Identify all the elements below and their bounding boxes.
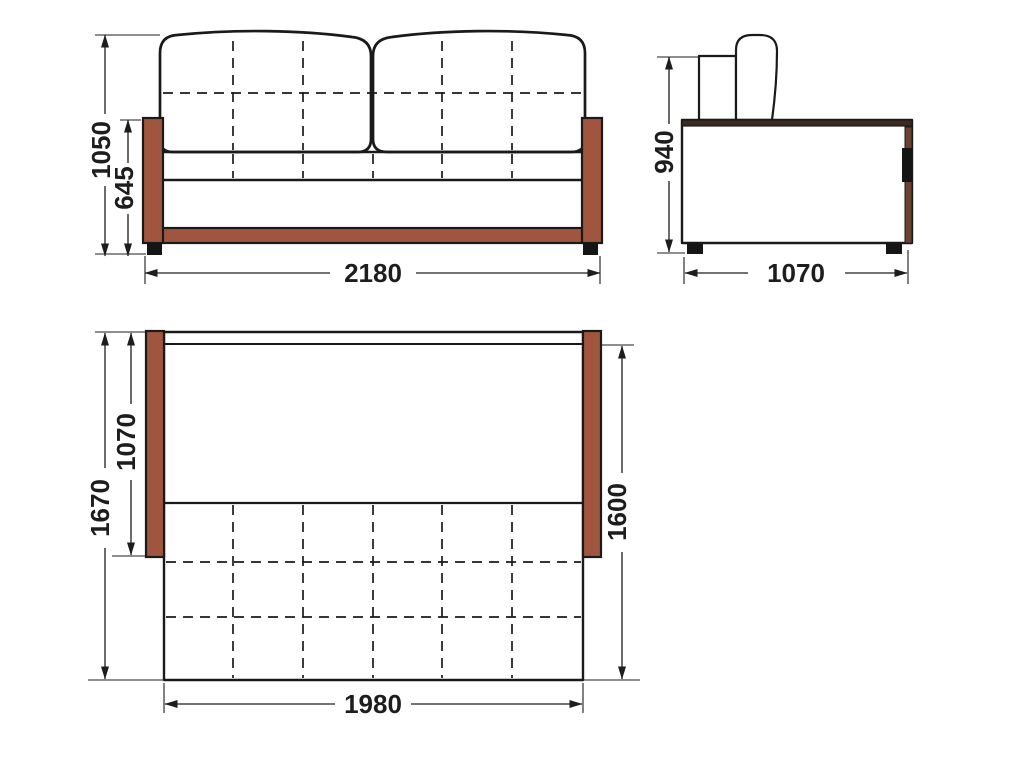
front-view: 1050 645 2180 (86, 31, 602, 288)
side-view: 940 1070 (649, 35, 912, 288)
dim-label-plan-bed-length: 1600 (602, 483, 632, 541)
side-back-cushion (736, 35, 777, 120)
plan-view: 1670 1070 1600 1980 (85, 331, 640, 719)
dim-label-front-armrest-height: 645 (109, 166, 139, 209)
armrest-left (143, 118, 163, 243)
dim-label-side-depth: 1070 (767, 258, 825, 288)
dim-label-plan-bed-width: 1980 (344, 689, 402, 719)
drawing-canvas: 1050 645 2180 940 1070 (0, 0, 1024, 768)
side-edge-rail (905, 127, 912, 243)
foot-right (583, 243, 598, 255)
back-cushion-right (373, 31, 585, 152)
sofa-dimension-drawing: 1050 645 2180 940 1070 (0, 0, 1024, 768)
back-cushion-left (160, 31, 371, 152)
dim-label-plan-total-length: 1670 (85, 479, 115, 537)
side-latch (902, 148, 912, 182)
dim-label-front-width: 2180 (344, 258, 402, 288)
armrest-right (582, 118, 602, 243)
dim-label-plan-seat-depth: 1070 (111, 413, 141, 471)
base-rail (161, 228, 584, 243)
side-body (682, 120, 912, 243)
foot-left (147, 243, 162, 255)
side-foot-right (886, 243, 902, 254)
plan-armrest-left (146, 331, 164, 557)
side-foot-left (687, 243, 703, 254)
plan-armrest-right (583, 331, 601, 557)
dim-label-side-height: 940 (649, 130, 679, 173)
side-armrest (699, 56, 736, 120)
side-top-rail (682, 120, 912, 126)
